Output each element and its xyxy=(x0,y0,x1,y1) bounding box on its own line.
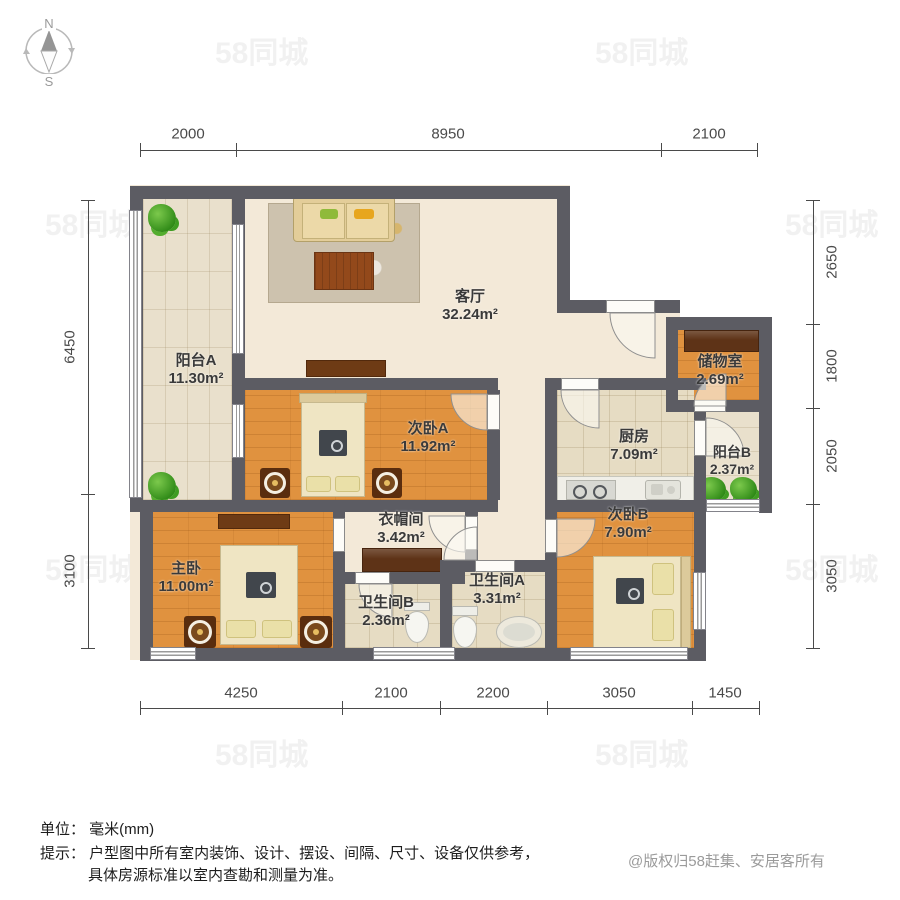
footer-tip-line1: 提示： 户型图中所有室内装饰、设计、摆设、间隔、尺寸、设备仅供参考， xyxy=(40,842,539,863)
footer-tip-line2: 具体房源标准以室内查勘和测量为准。 xyxy=(88,864,343,885)
door-arc-entry xyxy=(610,313,655,358)
room-label-bedroom-b: 次卧B7.90m² xyxy=(604,506,652,542)
room-label-bath-a: 卫生间A3.31m² xyxy=(469,572,525,608)
room-label-kitchen: 厨房7.09m² xyxy=(610,428,658,464)
room-label-cloakroom: 衣帽间3.42m² xyxy=(377,511,425,547)
room-label-storage: 储物室2.69m² xyxy=(696,353,744,389)
room-label-balcony-a: 阳台A11.30m² xyxy=(168,352,223,388)
room-label-bedroom-a: 次卧A11.92m² xyxy=(400,420,455,456)
floorplan-page: 58同城 58同城 58同城 58同城 58同城 58同城 58同城 58同城 … xyxy=(0,0,900,900)
room-label-living: 客厅32.24m² xyxy=(442,288,498,324)
room-label-bath-b: 卫生间B2.36m² xyxy=(358,594,414,630)
door-arc-kitchen xyxy=(561,390,599,428)
door-arc-bedroom-a xyxy=(451,394,487,430)
room-label-balcony-b: 阳台B2.37m² xyxy=(710,444,754,478)
door-arc-bedroom-b xyxy=(557,519,595,557)
footer-copyright: @版权归58赶集、安居客所有 xyxy=(628,850,825,871)
room-label-master: 主卧11.00m² xyxy=(158,560,213,596)
footer-unit-line: 单位： 毫米(mm) xyxy=(40,818,154,839)
